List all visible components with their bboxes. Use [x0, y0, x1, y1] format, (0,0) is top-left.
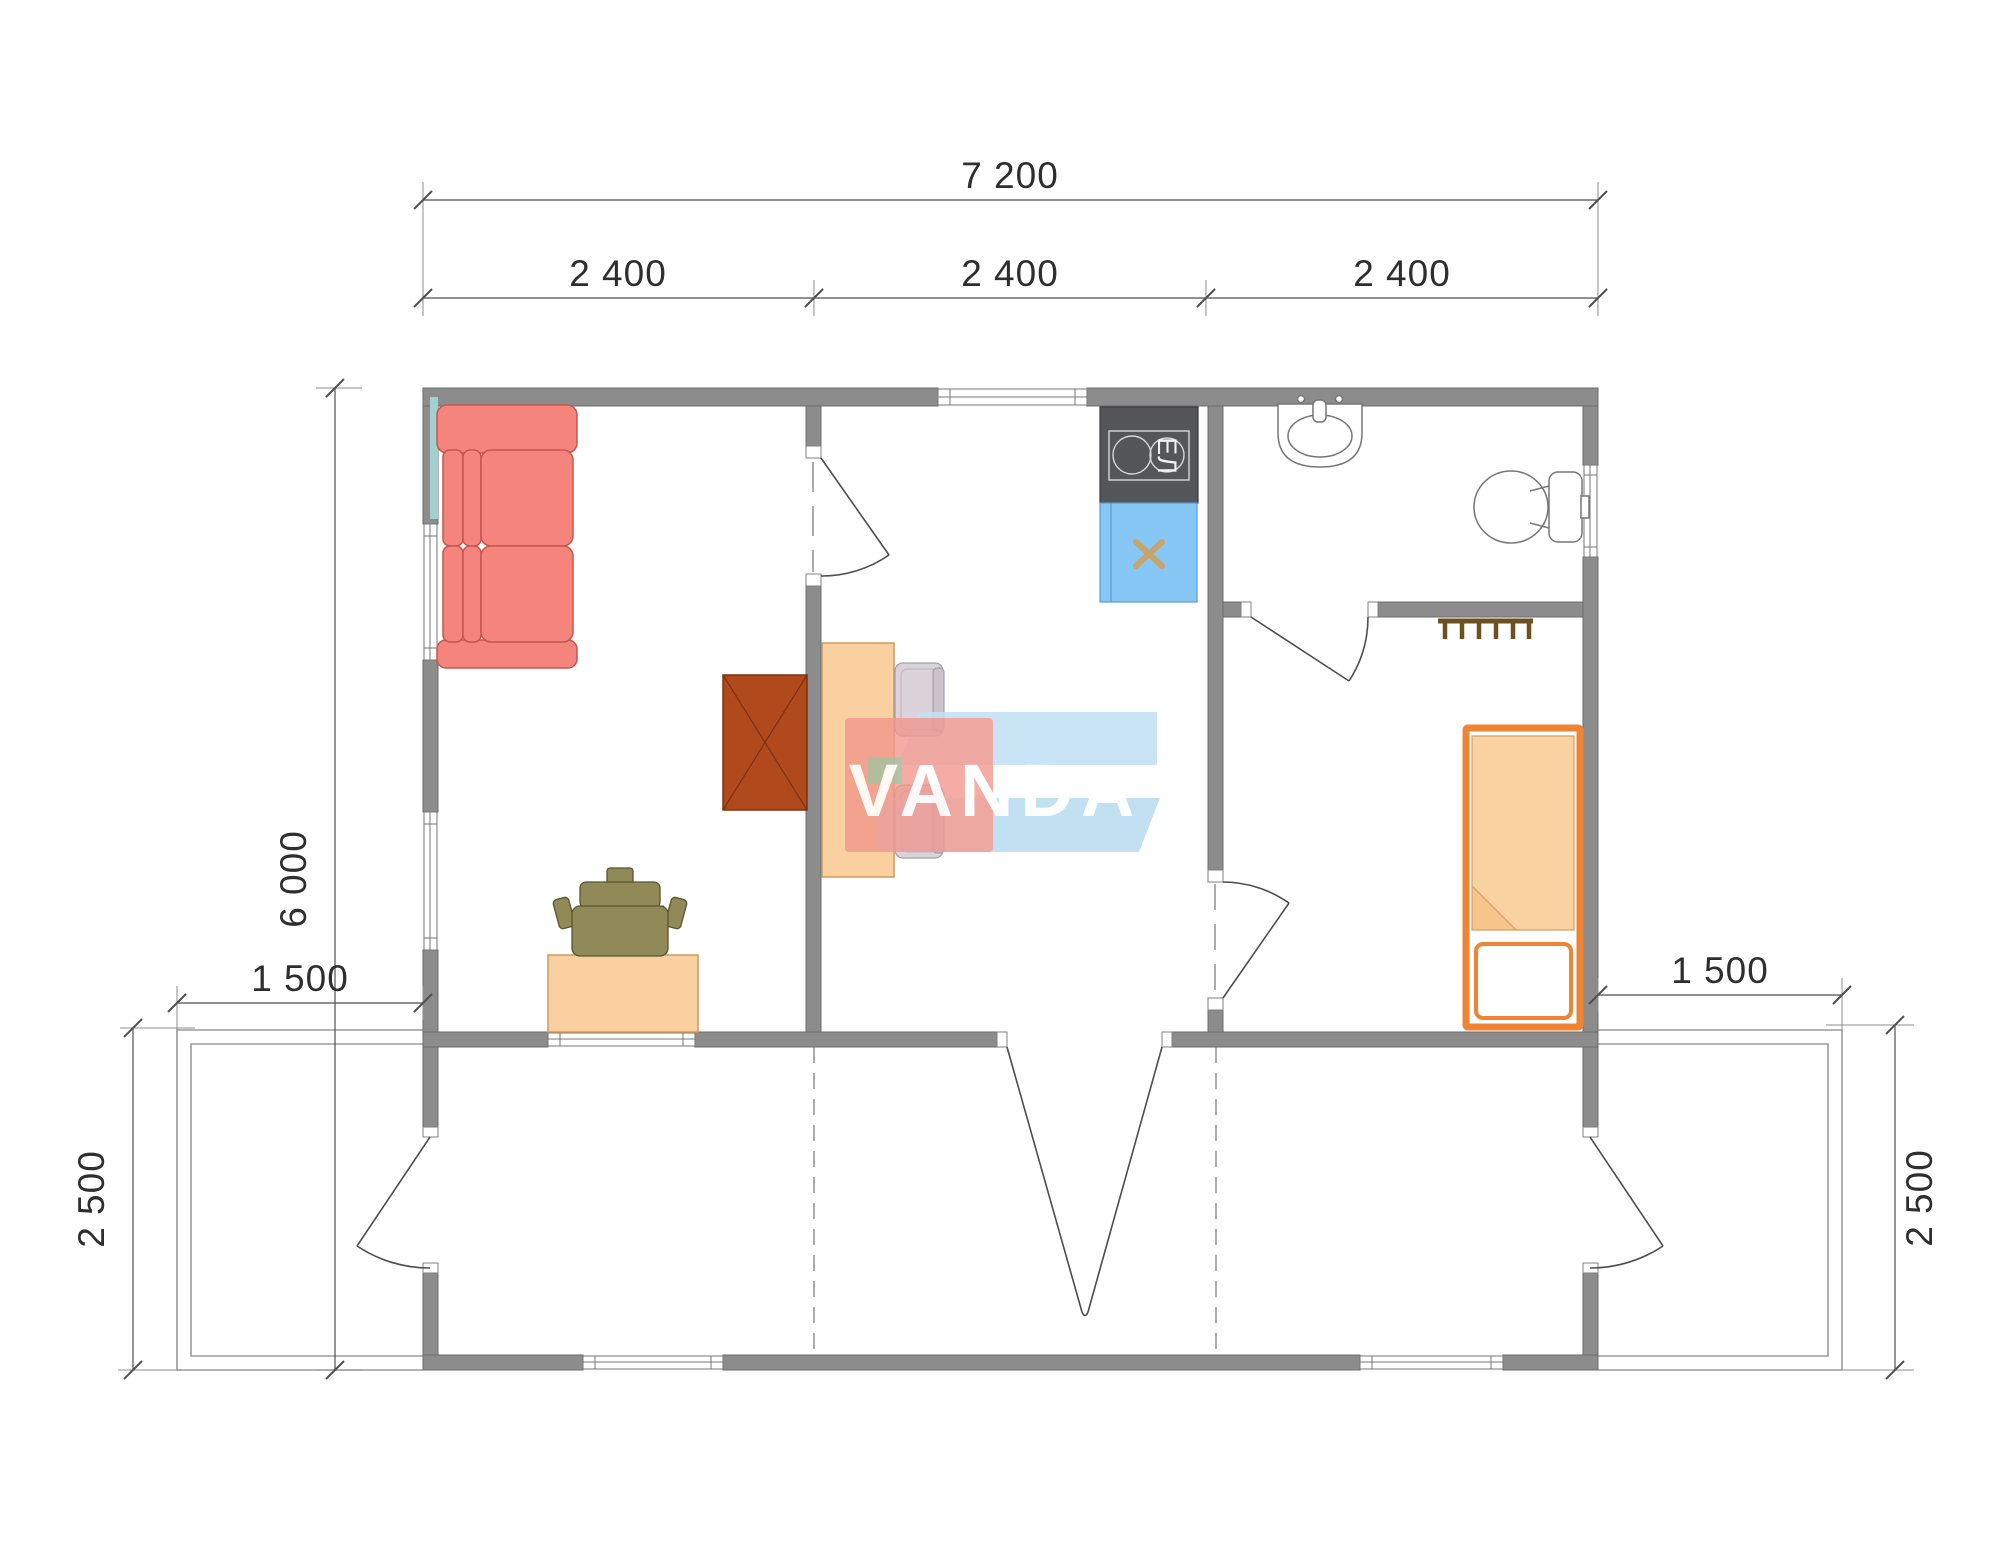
dim-label-6000: 6 000: [273, 830, 314, 928]
window-under-desk: [548, 1033, 695, 1046]
windows: [424, 389, 1597, 1369]
dim-label-2400-1: 2 400: [569, 253, 667, 294]
dim-label-2500-left: 2 500: [71, 1150, 112, 1248]
coat-rack: [1438, 621, 1533, 639]
stove: ЕЛ: [1100, 407, 1198, 503]
dim-label-7200: 7 200: [961, 155, 1059, 196]
sofa: [437, 405, 577, 668]
dimension-top-modules: 2 400 2 400 2 400: [414, 253, 1607, 316]
pillow: [1476, 944, 1571, 1018]
toilet: [1474, 471, 1589, 543]
washbasin: [1278, 396, 1362, 468]
stove-label: ЕЛ: [1152, 437, 1182, 475]
door-veranda-right-deck: [1590, 1137, 1663, 1268]
right-deck: [1598, 1030, 1842, 1370]
dimension-right-deck-depth: 2 500: [1826, 1016, 1940, 1379]
left-deck: [177, 1030, 423, 1370]
dimension-left-deck-width: 1 500: [168, 958, 432, 1032]
window-left-lower: [424, 812, 437, 950]
dim-label-2500-right: 2 500: [1899, 1149, 1940, 1247]
window-top-kitchen: [938, 389, 1087, 405]
floor-plan-page: ЕЛ 7 200: [0, 0, 2000, 1563]
walls: [423, 388, 1598, 1370]
kitchen-sink: [1100, 503, 1197, 602]
door-jambs: [423, 446, 1598, 1273]
office-chair: [552, 868, 687, 956]
window-veranda-left: [583, 1356, 723, 1369]
wardrobe: [723, 675, 807, 810]
door-living-to-kitchen: [821, 458, 889, 576]
dim-label-1500-left: 1 500: [251, 958, 349, 999]
faucet-icon: [1313, 400, 1326, 422]
bed: [1466, 728, 1580, 1027]
dimension-side-total: 6 000: [273, 379, 362, 1379]
dim-label-1500-right: 1 500: [1671, 950, 1769, 991]
dim-label-2400-2: 2 400: [961, 253, 1059, 294]
door-kitchen-to-bedroom: [1223, 882, 1289, 998]
dim-label-2400-3: 2 400: [1353, 253, 1451, 294]
door-bedroom-to-bathroom: [1251, 617, 1368, 681]
desk: [548, 955, 698, 1032]
watermark-logo: VANDA: [845, 712, 1160, 852]
dimension-right-deck-width: 1 500: [1589, 950, 1851, 1030]
window-veranda-right: [1360, 1356, 1503, 1369]
double-door-hall-to-veranda: [1007, 1047, 1162, 1316]
watermark-text: VANDA: [849, 749, 1142, 832]
door-veranda-left-deck: [357, 1137, 430, 1268]
floor-plan-drawing: ЕЛ 7 200: [0, 0, 2000, 1563]
window-left-upper: [424, 524, 437, 660]
